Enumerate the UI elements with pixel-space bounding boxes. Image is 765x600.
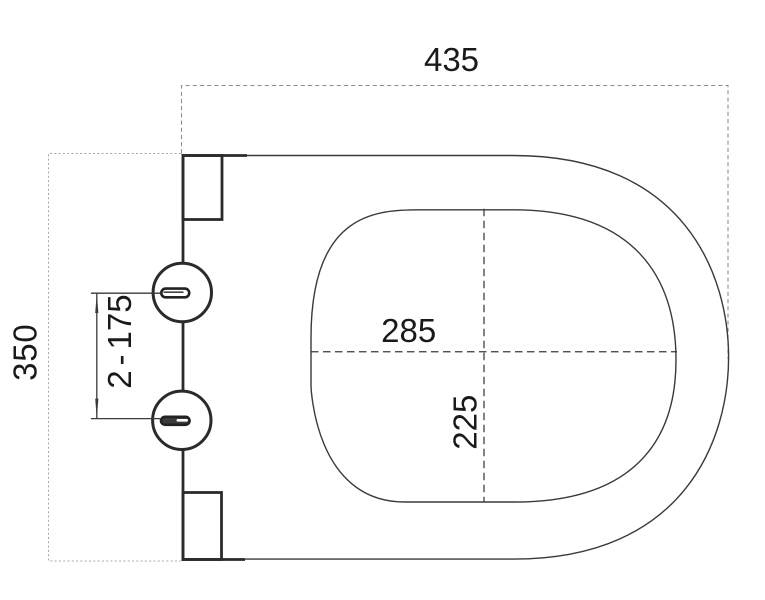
svg-text:2-175: 2-175 [101,294,138,388]
svg-text:350: 350 [6,323,43,380]
svg-text:435: 435 [424,41,479,78]
svg-text:285: 285 [381,312,436,349]
svg-text:225: 225 [447,395,484,450]
